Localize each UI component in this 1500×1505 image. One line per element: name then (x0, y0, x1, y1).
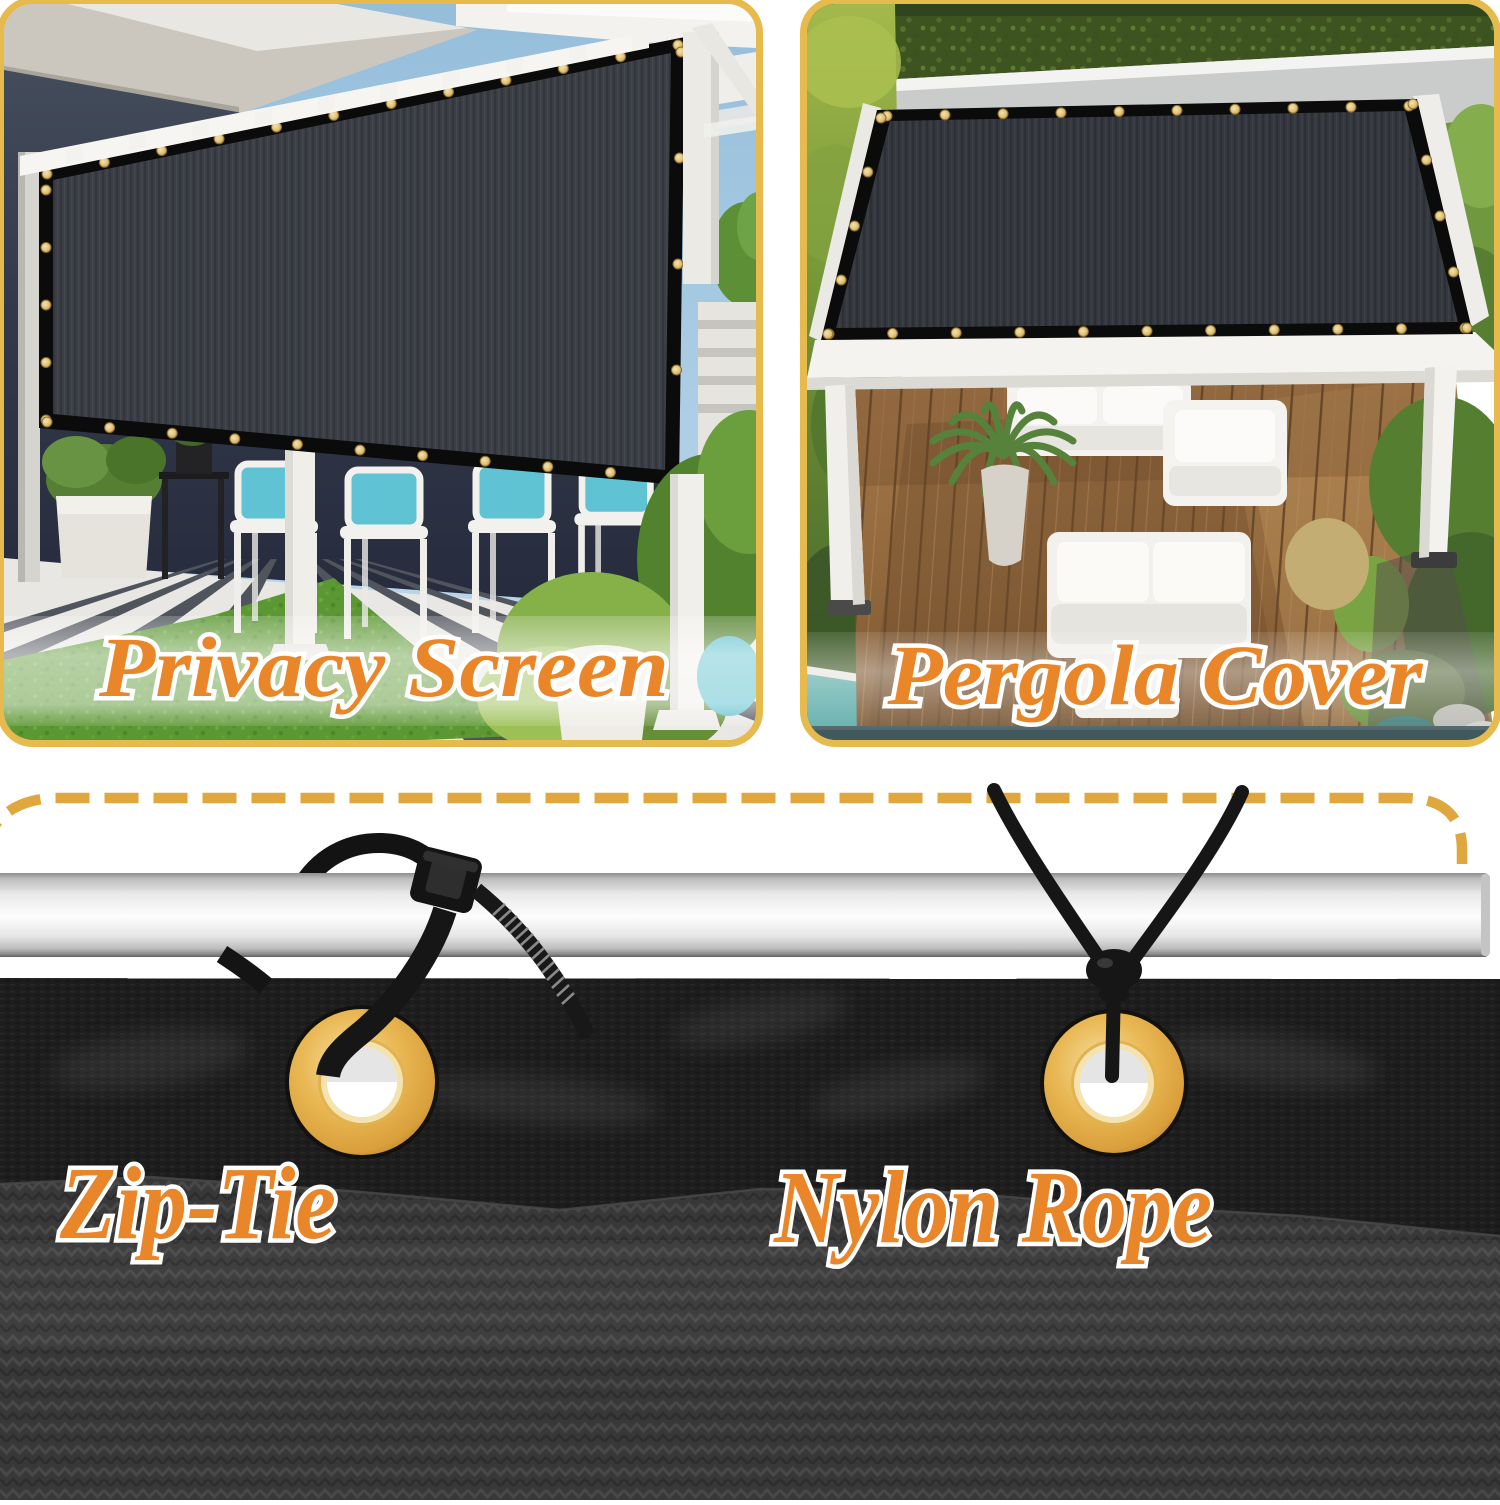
svg-text:Zip-Tie: Zip-Tie (59, 1146, 336, 1261)
svg-text:Privacy Screen: Privacy Screen (98, 619, 669, 715)
svg-text:Nylon Rope: Nylon Rope (773, 1150, 1212, 1265)
svg-text:Pergola Cover: Pergola Cover (886, 627, 1424, 723)
